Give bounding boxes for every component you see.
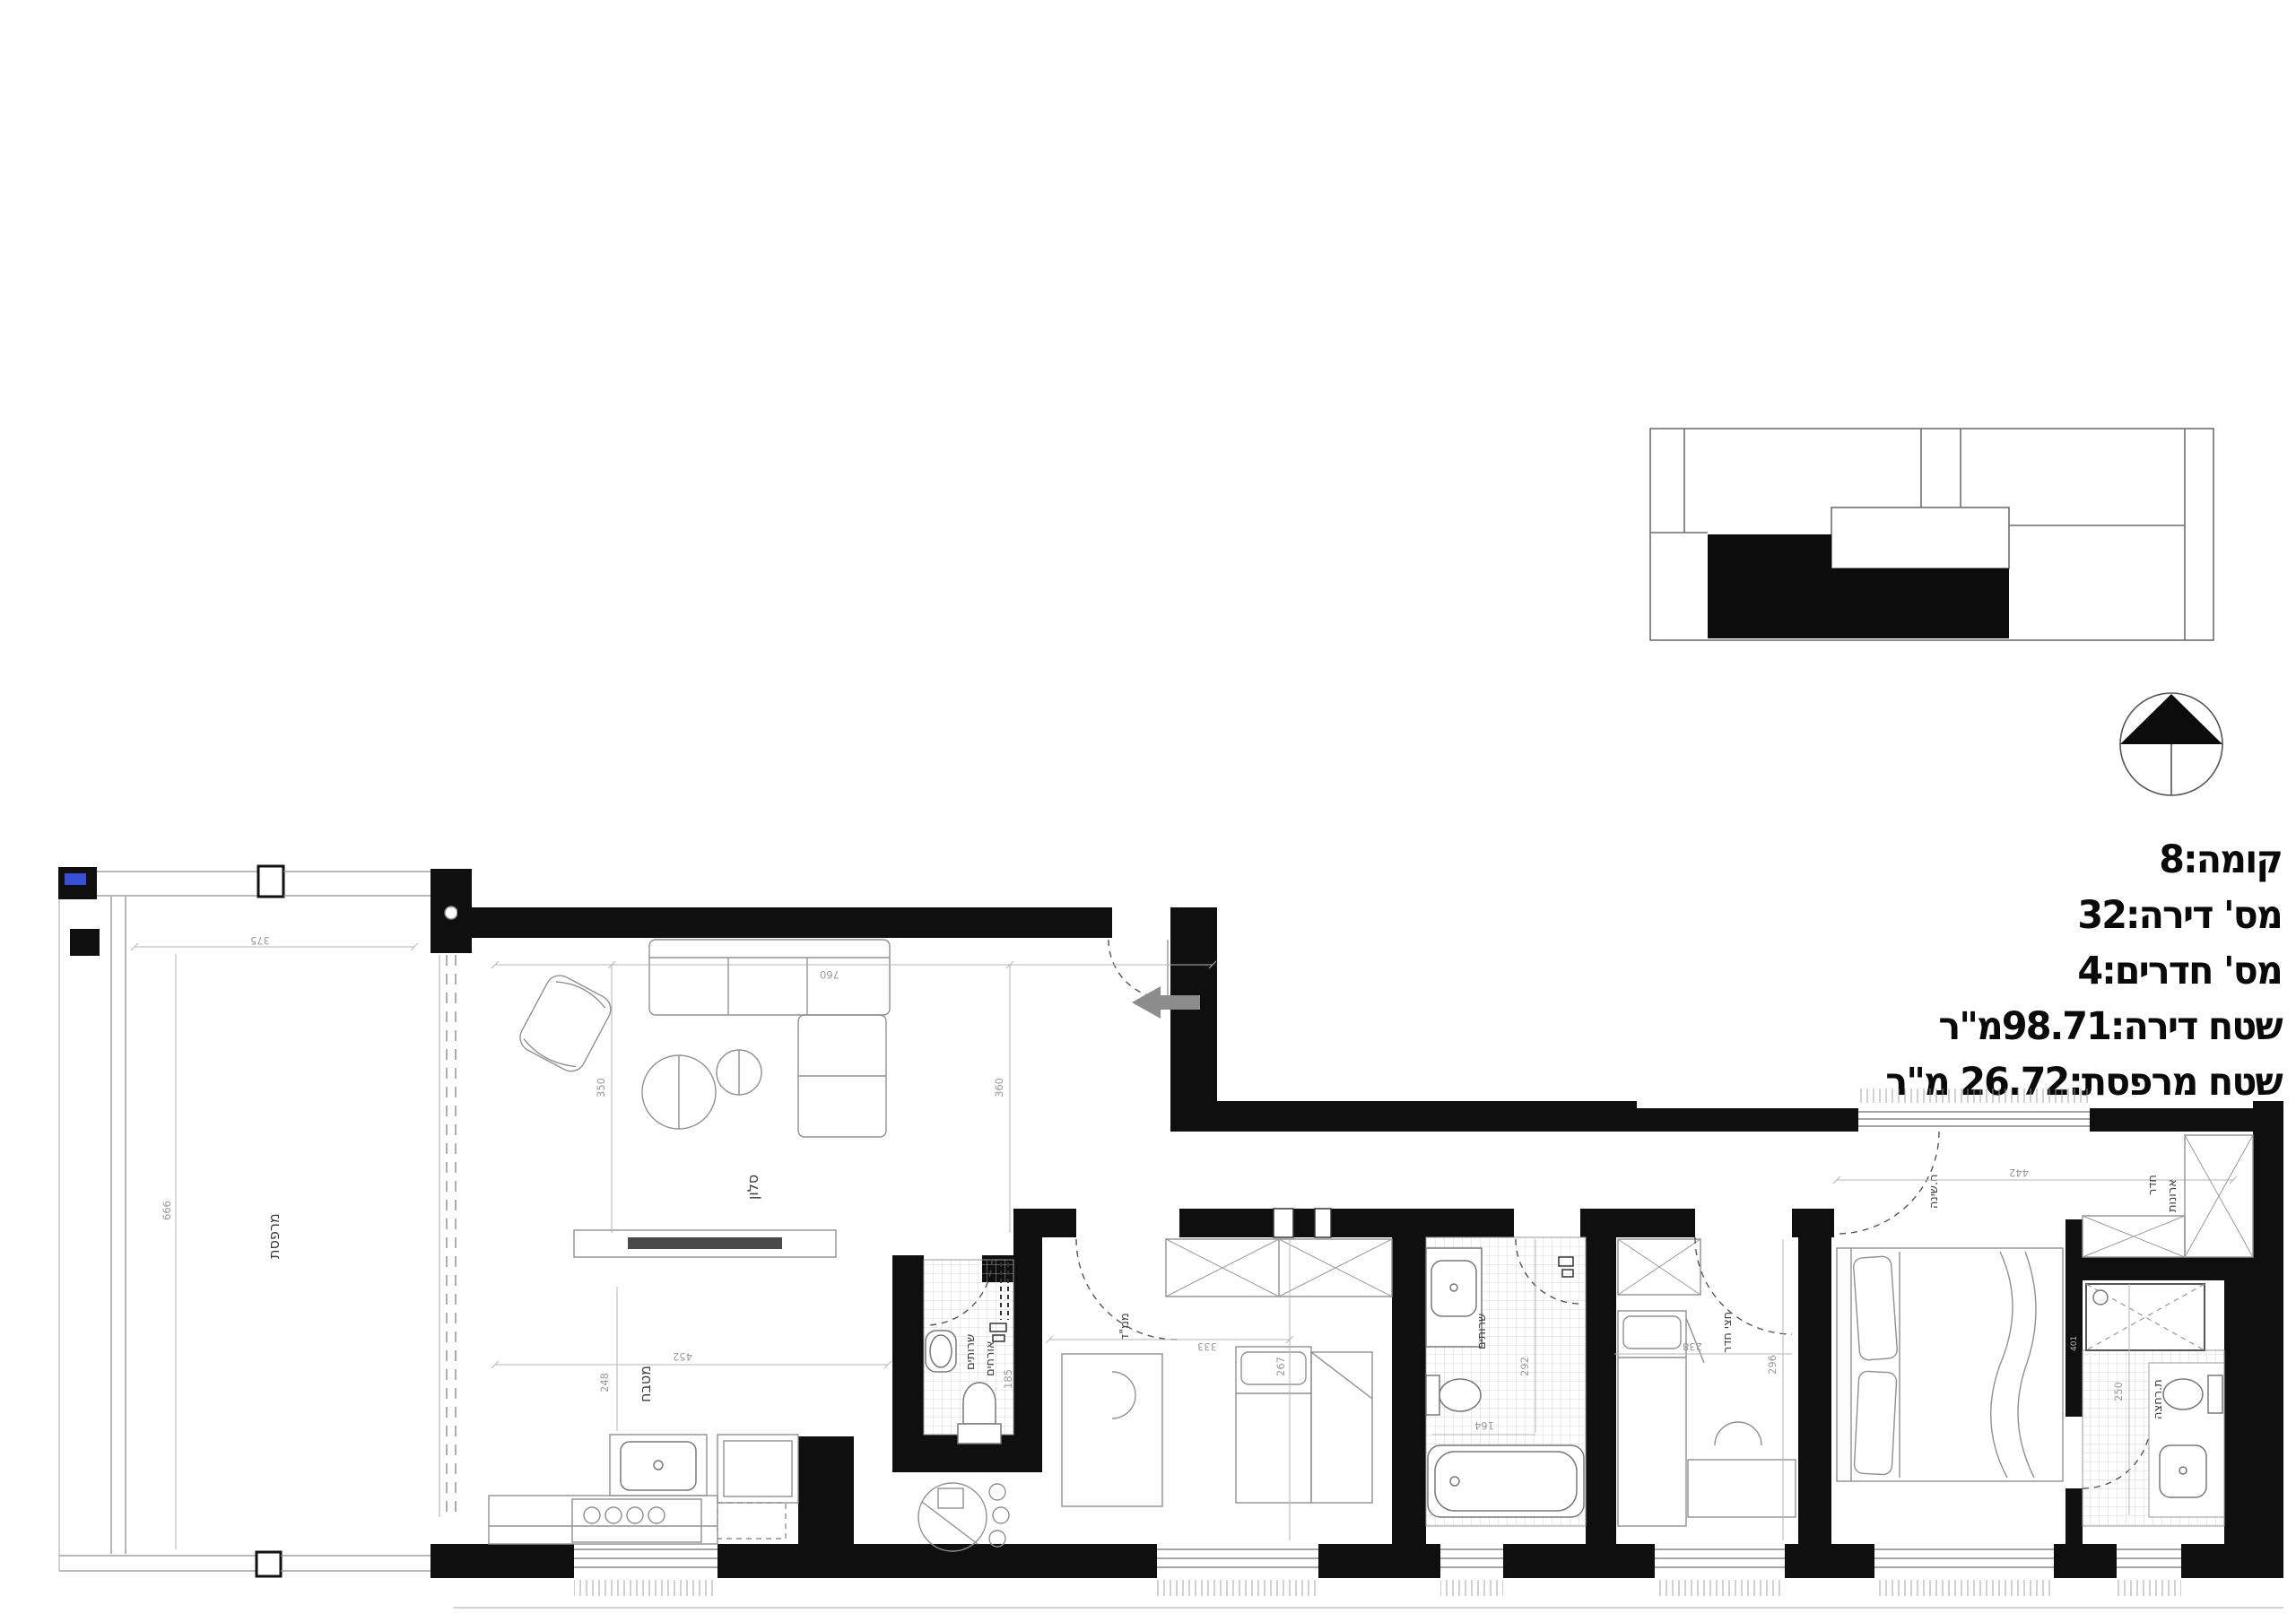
dim-mamad-depth: 267: [1274, 1357, 1287, 1376]
wall-tag: 401: [2070, 1336, 2079, 1351]
key-plan: [1650, 429, 2213, 640]
bathroom: שרותים 292 164: [1426, 1237, 1586, 1526]
dim-half-depth: 296: [1766, 1355, 1779, 1375]
guest-wc: שרותים אורחים 185: [924, 1259, 1014, 1444]
dishwasher: [717, 1503, 786, 1539]
half-room-closet: [1618, 1239, 1700, 1295]
living-room-label: סלון: [744, 1175, 761, 1200]
closet-room-label-1: חדר: [2146, 1175, 2160, 1195]
bathroom-label: שרותים: [1475, 1314, 1489, 1349]
kitchen-island-sink: [610, 1435, 707, 1496]
armchair: [515, 970, 615, 1076]
mamad-window: [1157, 1549, 1318, 1596]
shower-room-label: ת.רחצה: [2152, 1379, 2165, 1419]
shower-stall: [2086, 1284, 2205, 1350]
dim-half-width: 238: [1683, 1340, 1702, 1353]
half-room-desk: [1688, 1422, 1796, 1517]
half-room-window: [1655, 1549, 1785, 1596]
half-room-label: חצי חדר: [1721, 1312, 1735, 1353]
master-top-window: [1858, 1089, 2090, 1126]
mamad-room: ממ"ד 333 267: [1046, 1239, 1392, 1540]
guest-wc-label-2: אורחים: [984, 1340, 997, 1376]
guest-wc-label-1: שרותים: [964, 1334, 978, 1370]
mamad-bed: [1236, 1347, 1372, 1503]
dim-shower-depth: 250: [2112, 1382, 2125, 1401]
dim-bath-width: 164: [1474, 1419, 1494, 1432]
shower-sink: [2160, 1445, 2206, 1497]
sofa: [649, 940, 890, 1137]
kitchen-window: [574, 1549, 717, 1596]
dim-balcony-width: 375: [250, 934, 270, 947]
balcony: 375 666 מרפסת: [58, 866, 472, 1576]
half-room: חצי חדר 238 296: [1614, 1237, 1796, 1540]
bath-sink: [1426, 1248, 1482, 1347]
wc-sink: [926, 1331, 956, 1372]
balcony-corner-marker: [65, 873, 86, 885]
wardrobe-b: [2185, 1135, 2253, 1257]
key-plan-unit-fill-right: [1831, 568, 2009, 638]
floor-plan-drawing: 375 666 מרפסת: [0, 0, 2296, 1622]
mamad-label: ממ"ד: [1118, 1313, 1132, 1340]
master-door-swing: [1837, 1132, 1939, 1234]
stove: [572, 1499, 701, 1542]
living-room: סלון 760 350 360: [491, 940, 1216, 1257]
master-bed: [1837, 1248, 2063, 1481]
dim-living-right: 360: [993, 1078, 1005, 1097]
closet-room: חדר ארונות: [2083, 1135, 2253, 1257]
dim-kitchen-depth: 248: [598, 1373, 611, 1392]
mamad-desk: [1062, 1354, 1162, 1506]
dim-bath-depth: 292: [1518, 1357, 1531, 1376]
half-room-door-swing: [1695, 1237, 1792, 1334]
mamad-closet: [1166, 1239, 1392, 1297]
dim-balcony-height: 666: [161, 1201, 173, 1220]
tv: [628, 1237, 782, 1249]
dim-living-left: 350: [595, 1078, 607, 1097]
dim-kitchen-width: 452: [673, 1350, 692, 1363]
master-window: [1874, 1549, 2054, 1596]
dim-mamad-width: 333: [1197, 1340, 1217, 1353]
shower-window: [2117, 1549, 2181, 1596]
shower-room: ת.רחצה 250: [2083, 1284, 2224, 1526]
balcony-label: מרפסת: [265, 1213, 283, 1259]
wardrobe-a: [2083, 1216, 2185, 1257]
closet-room-label-2: ארונות: [2166, 1179, 2179, 1212]
dim-wc: 185: [1002, 1369, 1014, 1389]
kitchen-label: מטבח: [637, 1366, 654, 1402]
shower-toilet: [2163, 1375, 2222, 1413]
dining-table: [918, 1483, 1009, 1551]
master-bedroom-label: ח.שינה: [1927, 1175, 1941, 1209]
key-plan-unit-fill-left: [1708, 534, 1831, 638]
north-arrow-icon: [2120, 693, 2222, 795]
dim-master-width: 442: [2009, 1167, 2029, 1179]
bath-window: [1440, 1549, 1503, 1596]
bathtub: [1428, 1445, 1584, 1517]
dim-living-top: 760: [820, 968, 839, 981]
floor-plan-page: קומה:8 מס' דירה:32 מס' חדרים:4 שטח דירה:…: [0, 0, 2296, 1622]
tall-cabinet: [717, 1435, 798, 1503]
